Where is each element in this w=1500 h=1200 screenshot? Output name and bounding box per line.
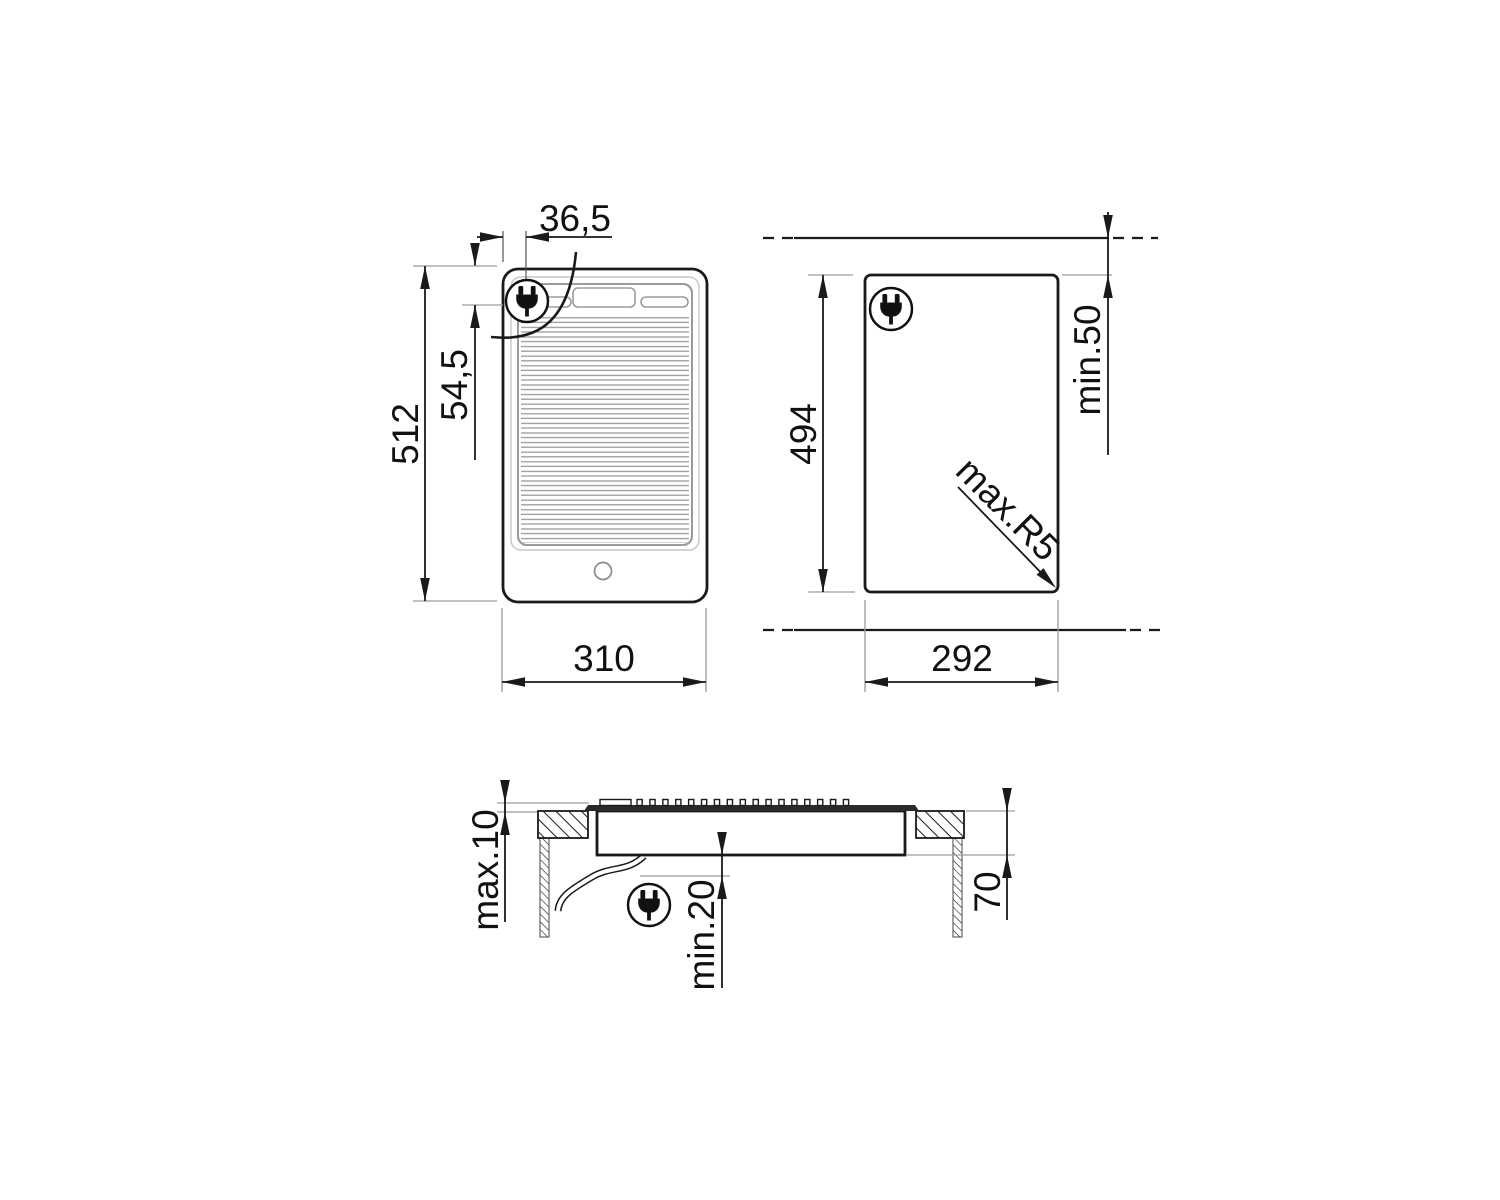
dim-plan-height: 512	[385, 266, 497, 601]
dim-cable-offset-x-label: 36,5	[539, 198, 611, 239]
hob-body-section	[597, 811, 905, 855]
dim-max-above: max.10	[465, 780, 589, 931]
dim-cable-offset-y: 54,5	[434, 243, 480, 460]
plug-badge-icon	[506, 280, 548, 322]
knob	[595, 563, 612, 580]
plan-view: 36,5 54,5 512 310	[385, 198, 707, 692]
display-window	[573, 288, 635, 307]
hob-lip	[584, 805, 919, 811]
cabinet-side-right	[953, 838, 962, 937]
grill-slats	[521, 314, 689, 543]
control-bar-right	[641, 297, 688, 307]
dim-cutout-height: 494	[783, 275, 855, 592]
installation-drawing: 36,5 54,5 512 310	[0, 0, 1500, 1200]
dim-plan-height-label: 512	[385, 403, 426, 465]
cabinet-side-left	[540, 838, 549, 937]
dim-max-above-label: max.10	[465, 809, 506, 930]
dim-plan-width-label: 310	[573, 638, 635, 679]
worktop-left-block	[538, 811, 588, 838]
dim-depth-below-label: 70	[967, 871, 1008, 912]
dim-plan-width: 310	[502, 608, 706, 692]
plug-badge-icon	[628, 884, 670, 926]
dim-cable-offset-x: 36,5	[477, 198, 612, 242]
dim-min-below-label: min.20	[681, 879, 722, 990]
worktop-right-block	[916, 811, 964, 838]
dim-cutout-height-label: 494	[783, 403, 824, 465]
dim-cutout-width-label: 292	[931, 638, 993, 679]
installation-drawing-page: 36,5 54,5 512 310	[0, 0, 1500, 1200]
dim-cutout-width: 292	[865, 600, 1058, 692]
grill-teeth	[637, 800, 849, 806]
grill-left-ridge	[600, 800, 631, 806]
section-view: max.10 min.20 70	[465, 780, 1015, 991]
dim-cable-offset-y-label: 54,5	[434, 349, 475, 421]
plug-badge-icon	[870, 288, 912, 330]
dim-rear-clearance-label: min.50	[1067, 304, 1108, 415]
cutout-view: 494 min.50 max.R5 292	[763, 212, 1160, 692]
dim-rear-clearance: min.50	[1062, 212, 1113, 455]
